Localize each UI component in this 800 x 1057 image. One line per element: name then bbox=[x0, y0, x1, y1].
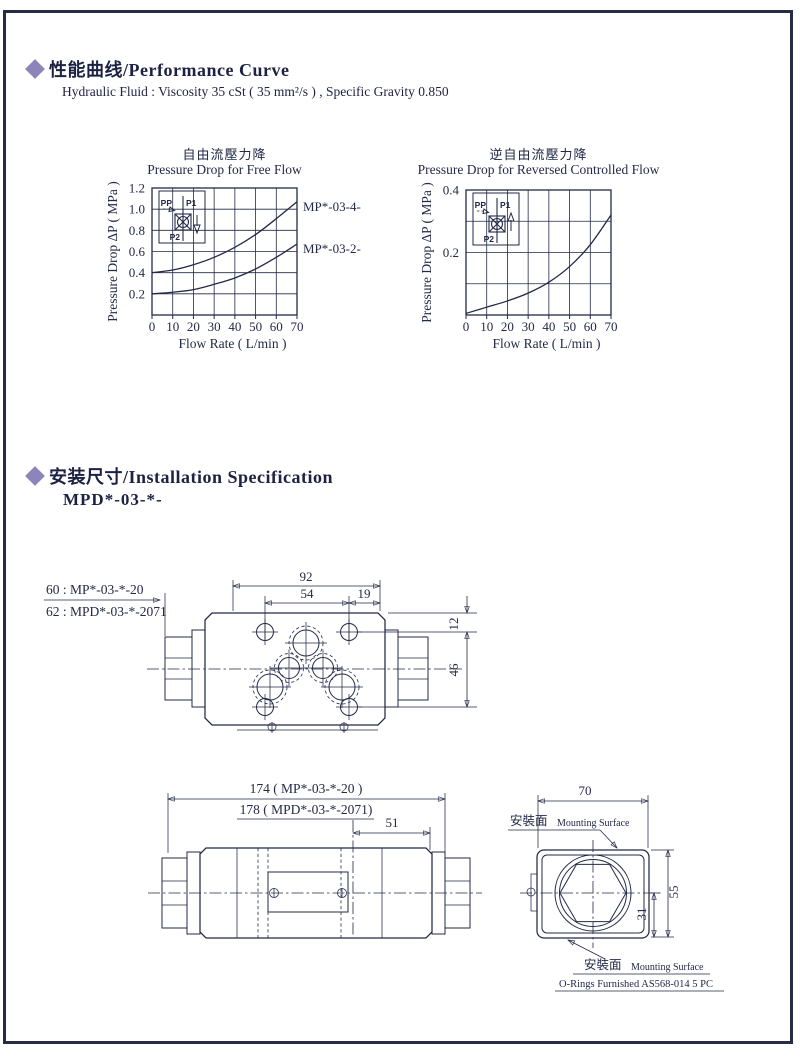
y-tick-label: 1.2 bbox=[129, 181, 145, 196]
x-tick-label: 40 bbox=[542, 319, 555, 334]
dim-92: 92 bbox=[300, 569, 313, 584]
end-view-drawing: 70 55 31 安裝面 Mounting Surface bbox=[498, 782, 798, 996]
x-tick-label: 30 bbox=[522, 319, 535, 334]
inset-port-p1: P1 bbox=[500, 200, 511, 210]
inset-port-p1: P1 bbox=[186, 198, 197, 208]
dim-12: 12 bbox=[446, 618, 461, 631]
inset-port-p2: P2 bbox=[170, 232, 181, 242]
x-tick-label: 0 bbox=[463, 319, 470, 334]
y-tick-label: 1.0 bbox=[129, 202, 145, 217]
free-flow-pressure-drop-chart: 自由流壓力降Pressure Drop for Free Flow0102030… bbox=[100, 145, 392, 367]
y-tick-label: 0.6 bbox=[129, 244, 146, 259]
performance-section-title: 性能曲线/Performance Curve bbox=[49, 56, 289, 82]
mounting-surface-label-en: Mounting Surface bbox=[631, 962, 704, 973]
y-axis-title: Pressure Drop ΔP ( MPa ) bbox=[105, 181, 120, 322]
inset-port-pp: PP bbox=[475, 200, 487, 210]
callout-leader bbox=[600, 830, 617, 848]
mounting-surface-label-en: Mounting Surface bbox=[557, 818, 630, 829]
chart-title-zh: 自由流壓力降 bbox=[182, 147, 266, 162]
left-adapter bbox=[192, 630, 205, 707]
dim-31: 31 bbox=[634, 908, 649, 921]
catalog-page: 性能曲线/Performance Curve Hydraulic Fluid :… bbox=[0, 0, 800, 1057]
x-tick-label: 60 bbox=[270, 319, 283, 334]
callout-leader bbox=[568, 940, 605, 959]
chart-title-en: Pressure Drop for Free Flow bbox=[147, 162, 302, 177]
x-tick-label: 50 bbox=[563, 319, 576, 334]
orings-note: O-Rings Furnished AS568-014 5 PC bbox=[559, 979, 713, 990]
mounting-surface-label-zh: 安裝面 bbox=[510, 813, 548, 828]
series-label-0: MP*-03-4- bbox=[303, 199, 361, 214]
dim-51: 51 bbox=[386, 815, 399, 830]
section-diamond-icon bbox=[25, 466, 45, 486]
model-leaders: 60 : MP*-03-*-20 62 : MPD*-03-*-2071 bbox=[44, 582, 167, 636]
mounting-surface-callout-top: 安裝面 Mounting Surface bbox=[508, 813, 630, 848]
side-tab bbox=[531, 874, 537, 911]
y-axis-title: Pressure Drop ΔP ( MPa ) bbox=[419, 182, 434, 323]
y-tick-label: 0.2 bbox=[443, 245, 459, 260]
left-hex-nut bbox=[165, 637, 192, 700]
reversed-flow-pressure-drop-chart: 逆自由流壓力降Pressure Drop for Reversed Contro… bbox=[410, 145, 702, 367]
x-tick-label: 70 bbox=[291, 319, 304, 334]
y-tick-label: 0.4 bbox=[129, 265, 146, 280]
series-label-1: MP*-03-2- bbox=[303, 241, 361, 256]
x-tick-label: 10 bbox=[166, 319, 179, 334]
dim-174: 174 ( MP*-03-*-20 ) bbox=[250, 781, 363, 796]
x-tick-label: 10 bbox=[480, 319, 493, 334]
x-tick-label: 60 bbox=[584, 319, 597, 334]
port-and-bolt-holes bbox=[249, 619, 363, 720]
section-diamond-icon bbox=[25, 59, 45, 79]
nameplate bbox=[268, 872, 348, 912]
leader-label-height-60: 60 : MP*-03-*-20 bbox=[46, 582, 144, 597]
performance-section-header: 性能曲线/Performance Curve bbox=[28, 56, 289, 82]
x-tick-label: 20 bbox=[187, 319, 200, 334]
valve-body-side-view bbox=[148, 820, 482, 938]
installation-section-title: 安装尺寸/Installation Specification bbox=[49, 463, 333, 489]
model-code: MPD*-03-*- bbox=[63, 490, 163, 510]
x-tick-label: 0 bbox=[149, 319, 156, 334]
dim-55: 55 bbox=[666, 886, 681, 899]
side-view-dimensions: 174 ( MP*-03-*-20 ) 178 ( MPD*-03-*-2071… bbox=[168, 781, 445, 853]
dim-178: 178 ( MPD*-03-*-2071) bbox=[240, 802, 373, 817]
right-adapter bbox=[385, 630, 398, 707]
y-tick-label: 0.4 bbox=[443, 183, 460, 198]
chart-title-en: Pressure Drop for Reversed Controlled Fl… bbox=[418, 162, 660, 177]
mounting-surface-callout-bottom: 安裝面 Mounting Surface O-Rings Furnished A… bbox=[555, 940, 724, 991]
installation-section-header: 安装尺寸/Installation Specification bbox=[28, 463, 333, 489]
inset-port-pp: PP bbox=[161, 198, 173, 208]
end-view-dimensions: 70 55 31 bbox=[538, 783, 681, 937]
valve-body-top-view bbox=[147, 613, 462, 733]
x-tick-label: 70 bbox=[605, 319, 618, 334]
inset-port-p2: P2 bbox=[484, 234, 495, 244]
x-axis-title: Flow Rate ( L/min ) bbox=[179, 336, 287, 351]
series-curve-0 bbox=[466, 215, 611, 313]
x-axis-title: Flow Rate ( L/min ) bbox=[493, 336, 601, 351]
valve-body-end-view bbox=[520, 840, 663, 948]
x-tick-label: 20 bbox=[501, 319, 514, 334]
mounting-surface-label-zh: 安裝面 bbox=[584, 957, 622, 972]
right-hex-nut bbox=[398, 637, 428, 700]
y-tick-label: 0.2 bbox=[129, 286, 145, 301]
flow-arrow-down bbox=[194, 225, 200, 233]
x-tick-label: 50 bbox=[249, 319, 262, 334]
side-view-drawing: 174 ( MP*-03-*-20 ) 178 ( MPD*-03-*-2071… bbox=[140, 778, 480, 974]
y-tick-label: 0.8 bbox=[129, 223, 145, 238]
chart-title-zh: 逆自由流壓力降 bbox=[489, 147, 587, 162]
dim-54: 54 bbox=[301, 586, 315, 601]
leader-label-height-62: 62 : MPD*-03-*-2071 bbox=[46, 604, 167, 619]
x-tick-label: 30 bbox=[208, 319, 221, 334]
top-view-drawing: 60 : MP*-03-*-20 62 : MPD*-03-*-2071 92 … bbox=[40, 565, 490, 767]
flow-arrow-up bbox=[508, 213, 514, 221]
hydraulic-fluid-note: Hydraulic Fluid : Viscosity 35 cSt ( 35 … bbox=[62, 84, 449, 100]
x-tick-label: 40 bbox=[228, 319, 241, 334]
dim-46: 46 bbox=[446, 663, 461, 677]
dim-70: 70 bbox=[579, 783, 592, 798]
dim-19: 19 bbox=[358, 586, 371, 601]
